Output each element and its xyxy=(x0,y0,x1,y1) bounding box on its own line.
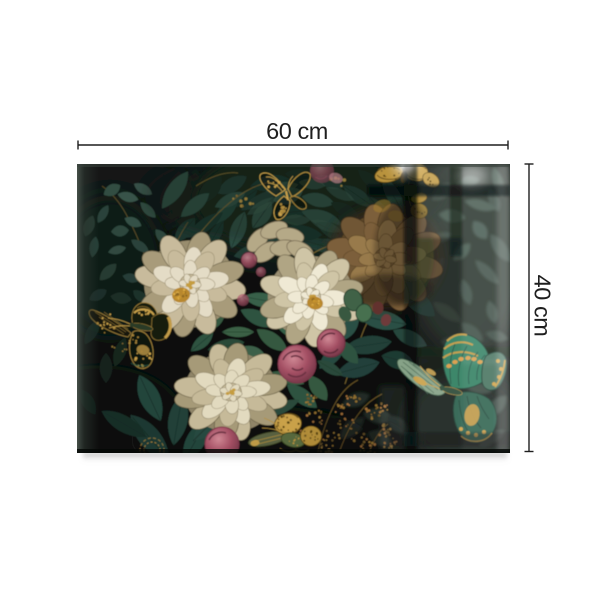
svg-text:60 cm: 60 cm xyxy=(266,118,328,144)
svg-text:40 cm: 40 cm xyxy=(530,275,556,337)
